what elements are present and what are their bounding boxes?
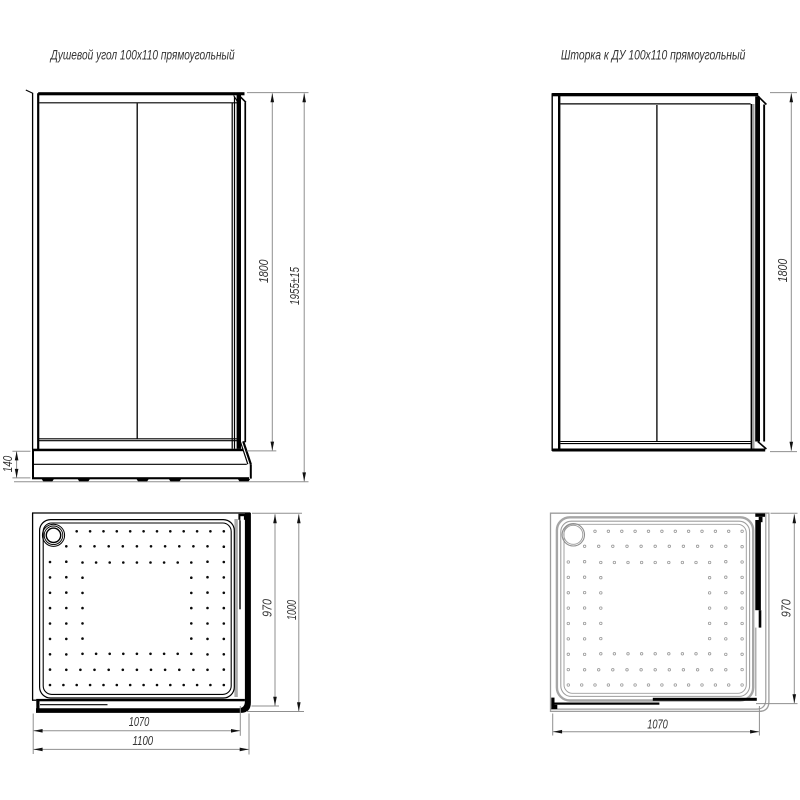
svg-text:1955±15: 1955±15 [288, 267, 302, 305]
svg-text:1070: 1070 [129, 715, 150, 729]
svg-text:1800: 1800 [776, 259, 790, 283]
svg-text:970: 970 [779, 599, 793, 617]
svg-text:Шторка к ДУ 100х110 прямоуголь: Шторка к ДУ 100х110 прямоугольный [561, 48, 746, 63]
svg-text:1100: 1100 [133, 734, 154, 748]
svg-text:1800: 1800 [257, 260, 271, 284]
svg-text:Душевой угол 100х110 прямоугол: Душевой угол 100х110 прямоугольный [49, 48, 235, 63]
svg-text:1070: 1070 [647, 718, 668, 732]
svg-text:140: 140 [1, 456, 15, 473]
svg-text:970: 970 [261, 599, 275, 617]
svg-text:1000: 1000 [285, 600, 299, 620]
